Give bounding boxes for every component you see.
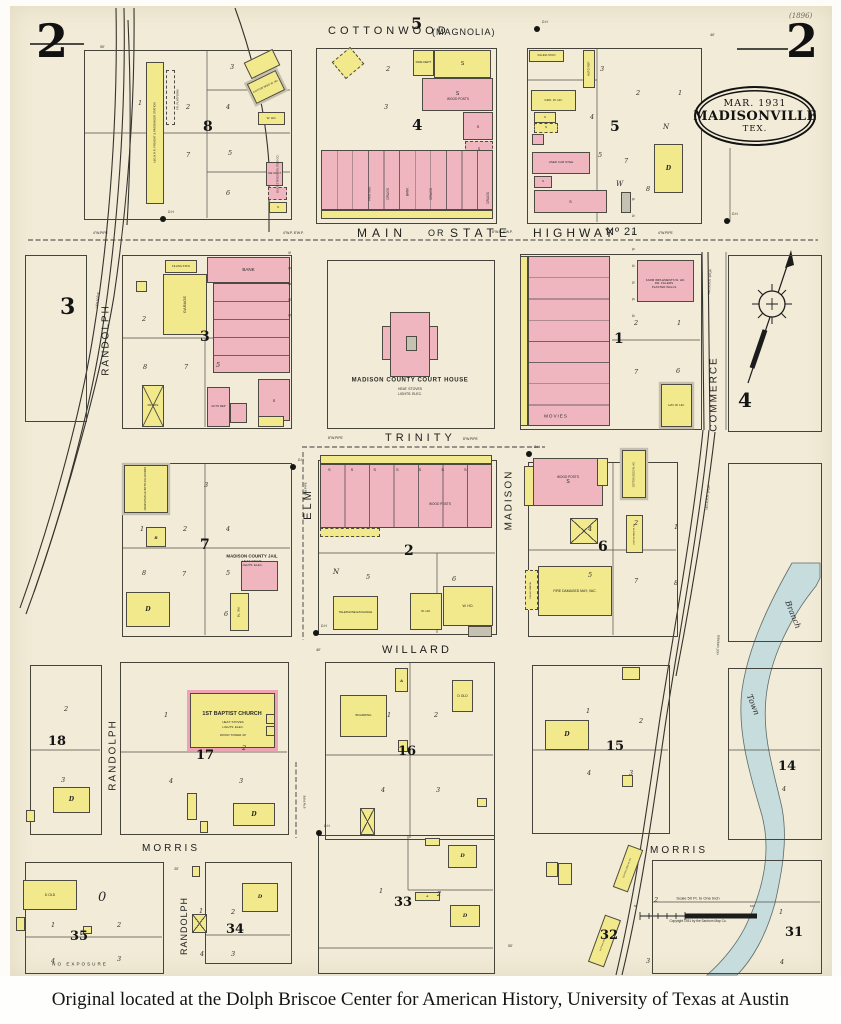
block-number-6: 6: [598, 540, 608, 554]
map-annotation-0: 0: [98, 890, 106, 906]
street-label-highway: HIGHWAY: [533, 226, 617, 240]
building: [320, 455, 492, 464]
lot-number: 1: [379, 888, 383, 895]
building: [320, 464, 492, 528]
lot-number: 8: [674, 580, 678, 587]
lot-number: 2: [186, 104, 190, 111]
building-label: S: [461, 61, 464, 67]
lot-number: 5: [366, 574, 370, 581]
block-number-31: 31: [785, 926, 803, 939]
building-label: S: [273, 398, 276, 403]
building-telephone-exchange: TELEPHONE EXCHANGE: [333, 596, 378, 630]
page-number: 2: [36, 14, 68, 68]
building-auto-rep: AUTO REP: [583, 50, 595, 88]
building-label: R: [154, 535, 157, 540]
block-number-32: 32: [600, 929, 618, 942]
map-annotation-gulf-states-utilities-co: GULF STATES UTILITIES CO.: [276, 155, 279, 193]
map-annotation-lights-elec: LIGHTS: ELEC.: [222, 726, 243, 730]
block-number-1: 1: [614, 332, 624, 346]
map-annotation-40: 40': [710, 33, 715, 37]
map-date-badge: MAR. 1931 MADISONVILLE TEX.: [694, 86, 816, 146]
building-label: FILLING STA'N: [172, 265, 190, 268]
building: [321, 210, 493, 219]
map-annotation-n: N: [663, 123, 669, 131]
lot-number: 3: [600, 66, 604, 73]
lot-number: 3: [629, 770, 633, 777]
street-label-randolph: RANDOLPH: [101, 304, 112, 376]
building-label: HAY W. HO.: [668, 404, 684, 408]
lot-number: 8: [142, 570, 146, 577]
lot-number: 7: [624, 158, 628, 165]
block-number-5: 5: [411, 16, 422, 32]
building: [468, 626, 492, 637]
lot-number: 2: [434, 712, 438, 719]
street-label-randolph: RANDOLPH: [108, 719, 119, 791]
street-label-or: OR: [428, 228, 446, 238]
badge-date: MAR. 1931: [724, 98, 787, 109]
building: [200, 821, 208, 833]
hydrant-label: D.H.: [321, 625, 327, 629]
map-annotation-movies: MOVIES: [544, 413, 568, 419]
lot-number: 4: [590, 114, 594, 121]
building: [528, 256, 610, 426]
hydrant-label: D.H.: [542, 21, 548, 25]
building-label: D: [69, 796, 74, 804]
building: [320, 528, 380, 537]
building-s: S: [434, 50, 491, 78]
building: [192, 866, 200, 877]
building-label: FILLING STATION: [530, 582, 533, 598]
lot-number: 2: [242, 745, 246, 752]
lot-number: 2: [117, 922, 121, 929]
building-s: S: [534, 176, 552, 188]
lot-number: 5: [588, 572, 592, 579]
lot-number: 3: [204, 482, 208, 489]
building-label: FILLING STA'N: [538, 54, 556, 57]
building: [532, 134, 544, 145]
building-label: S: [544, 116, 546, 120]
water-hydrant-dot: [724, 218, 730, 224]
map-annotation-i-g-n-r-r-spur: I.&G.N.R.R. SPUR: [708, 269, 713, 294]
lot-number: 5: [598, 152, 602, 159]
lot-number: 2: [386, 66, 390, 73]
map-annotation-ssssssss: SSSSSSSS: [630, 198, 635, 331]
building: [597, 458, 608, 486]
water-hydrant-dot: [313, 630, 319, 636]
block-outline: [25, 862, 164, 974]
lot-number: 3: [61, 777, 65, 784]
water-hydrant-dot: [160, 216, 166, 222]
block-number-5: 5: [610, 120, 620, 134]
block-number-8: 8: [203, 120, 213, 134]
street-label-madison: MADISON: [504, 470, 515, 531]
building: [266, 714, 275, 724]
map-annotation-100: 100: [750, 905, 755, 908]
lot-number: 1: [387, 712, 391, 719]
map-annotation-plaster-walls: PLASTER WALLS: [652, 286, 677, 290]
building-bank: BANK: [207, 257, 290, 283]
block-number-16: 16: [398, 745, 416, 758]
map-annotation-scale-50-ft-to-one-inch: Scale 50 Ft. to One Inch: [676, 897, 719, 902]
building-bl-sm: BL. SM.: [230, 593, 249, 631]
map-annotation-madison-county-court-house: MADISON COUNTY COURT HOUSE: [352, 377, 469, 384]
building-label: W. HO.: [421, 610, 431, 614]
map-annotation-sssssss: SSSSSSS: [328, 468, 487, 473]
building: [230, 403, 247, 423]
building-label: D: [463, 913, 467, 919]
map-annotation-fr-platform: FR. PLATFORM: [176, 90, 179, 110]
hydrant-label: D.H.: [534, 446, 540, 450]
building-label: D: [251, 811, 256, 819]
plate-note: (1896): [789, 12, 812, 20]
block-outline: [728, 668, 822, 840]
lot-number: 1: [779, 909, 783, 916]
lot-number: 2: [183, 526, 187, 533]
building-label: MADISONVILLE BOTTLING WORKS: [144, 467, 147, 510]
building: [546, 862, 558, 877]
block-number-7: 7: [200, 538, 210, 552]
lot-number: 2: [231, 909, 235, 916]
building-label: D: [258, 894, 262, 900]
map-annotation-4-w-pipe: 4"W.PIPE: [93, 231, 108, 235]
water-hydrant-dot: [534, 26, 540, 32]
lot-number: 7: [634, 369, 638, 376]
block-number-33: 33: [394, 896, 412, 909]
map-annotation-n: N: [333, 568, 339, 576]
hydrant-label: D.H.: [298, 459, 304, 463]
block-outline: [728, 463, 822, 642]
block-number-14: 14: [778, 760, 796, 773]
building: [192, 914, 207, 933]
lot-number: 1: [164, 712, 168, 719]
map-annotation-8-w-pipe: 8"W.PIPE: [463, 437, 478, 441]
building-label: S: [477, 124, 480, 129]
lot-number: 3: [384, 104, 388, 111]
lot-number: 5: [228, 150, 232, 157]
block-number-17: 17: [196, 749, 214, 762]
lot-number: 3: [646, 958, 650, 965]
building: [406, 336, 417, 351]
map-annotation-8-w-pipe: 8"W.PIPE: [304, 795, 308, 808]
lot-number: 3: [239, 778, 243, 785]
building-label: D OLD: [45, 893, 55, 897]
water-hydrant-dot: [290, 464, 296, 470]
building-used-car-stge: USED CAR STGE: [532, 152, 590, 174]
building-d: D: [545, 720, 589, 750]
building-w-ho: W. HO.: [258, 112, 285, 125]
lot-number: 2: [634, 520, 638, 527]
street-label-commerce: COMMERCE: [709, 356, 720, 431]
street-label-main: MAIN: [357, 226, 407, 240]
building-d-old: D OLD: [452, 680, 473, 712]
lot-number: 2: [142, 316, 146, 323]
street-label-magnolia: (MAGNOLIA): [432, 27, 496, 37]
map-annotation-sssss: SSSSS: [287, 251, 292, 329]
building-label: TELEPHONE EXCHANGE: [339, 611, 372, 614]
block-number-15: 15: [606, 740, 624, 753]
water-hydrant-dot: [526, 451, 532, 457]
block-number-3: 3: [60, 296, 75, 318]
building-d: D: [654, 144, 683, 193]
building: [558, 863, 572, 885]
building: [321, 150, 493, 210]
building-cotton-seed-w-ho: COTTON SEED W. HO.: [622, 450, 646, 498]
building-fire-dept: FIRE DEPT: [413, 50, 434, 76]
building-label: COTTON SEED W. HO.: [253, 79, 279, 94]
building-label: COTTON SEED W. HO.: [623, 858, 633, 879]
building-s: S: [534, 123, 558, 133]
map-annotation-8-w-p-4-w-p: 8"W.P. 4"W.P.: [492, 230, 513, 234]
building-w-ho: W. HO.: [443, 586, 493, 626]
hydrant-label: D.H.: [324, 825, 330, 829]
badge-city: MADISONVILLE: [693, 109, 817, 124]
building-d-old: D OLD: [23, 880, 77, 910]
lot-number: 4: [587, 770, 591, 777]
building-label: a: [427, 895, 429, 899]
map-annotation-wood-posts: WOOD POSTS: [447, 98, 469, 102]
block-outline: [25, 255, 87, 422]
lot-number: 1: [199, 908, 203, 915]
block-outline: [205, 862, 292, 964]
street-label-willard: WILLARD: [382, 644, 452, 656]
building-label: GARAGE: [183, 296, 188, 313]
lot-number: 6: [224, 611, 228, 618]
street-label-trinity: TRINITY: [385, 432, 456, 444]
building-r: R: [146, 527, 166, 547]
lot-number: 2: [64, 706, 68, 713]
map-annotation-8-w-pipe: 8"W.PIPE: [328, 436, 343, 440]
map-annotation-40: 40': [316, 648, 321, 652]
map-annotation-copyright-1931-by-the-sanborn-: Copyright 1931 by the Sanborn Map Co.: [669, 920, 726, 924]
building-filling-station: FILLING STATION: [525, 570, 538, 610]
lot-number: 2: [654, 897, 658, 904]
building-filling-sta-n: FILLING STA'N: [529, 50, 564, 62]
building-label: S: [542, 180, 544, 184]
building-label: S: [277, 206, 279, 210]
map-content-layer: I.&G.N.R.R. FREIGHT & PASSENGER STATIONC…: [0, 0, 841, 1024]
building: [258, 416, 284, 427]
lot-number: 2: [437, 891, 441, 898]
building-private: PRIVATE: [142, 385, 164, 427]
block-number-35: 35: [70, 930, 88, 943]
lot-number: 3: [231, 951, 235, 958]
badge-state: TEX.: [743, 124, 768, 134]
map-annotation-50: 50': [508, 944, 513, 948]
building-label: FIRE DAMAGED MAY; VAC.: [553, 589, 596, 593]
lot-number: 1: [138, 100, 142, 107]
building-label: S: [545, 126, 547, 130]
lot-number: 4: [588, 526, 592, 533]
building-label: D: [564, 731, 569, 739]
block-number-34: 34: [226, 923, 244, 936]
building: [360, 808, 375, 835]
archive-caption: Original located at the Dolph Briscoe Ce…: [0, 976, 841, 1024]
lot-number: 6: [452, 576, 456, 583]
building-label: I.&G.N.R.R. FREIGHT & PASSENGER STATION: [153, 103, 156, 164]
map-annotation-heat-stoves: HEAT: STOVES: [398, 387, 422, 391]
building-s: S: [534, 112, 556, 123]
building-s: S: [534, 190, 607, 213]
building: [136, 281, 147, 292]
map-annotation-madison-county-jail: MADISON COUNTY JAIL: [226, 553, 277, 558]
building-label: S: [569, 199, 572, 204]
building: [266, 726, 275, 736]
building-d: D: [53, 787, 90, 813]
lot-number: 7: [186, 152, 190, 159]
building-s: S: [269, 202, 287, 213]
building: [16, 917, 25, 931]
lot-number: 7: [184, 364, 188, 371]
building: [213, 283, 290, 373]
street-label-morris: MORRIS: [650, 845, 708, 856]
building-i-g-n-r-r-freight-passenger-station: I.&G.N.R.R. FREIGHT & PASSENGER STATION: [146, 62, 164, 204]
street-label-randolph: RANDOLPH: [179, 897, 189, 955]
lot-number: 4: [782, 786, 786, 793]
block-outline: [652, 860, 822, 974]
lot-number: 2: [636, 90, 640, 97]
building: [622, 667, 640, 680]
building: [425, 838, 440, 846]
building-label: D: [145, 606, 150, 614]
building-s: S: [533, 458, 603, 506]
lot-number: 4: [226, 104, 230, 111]
building-label: W. HO.: [463, 604, 474, 608]
building-hay-w-ho: HAY W. HO.: [661, 384, 692, 427]
lot-number: 6: [226, 190, 230, 197]
map-annotation-1st-baptist-church: 1ST BAPTIST CHURCH: [202, 711, 261, 717]
building-cotton-seed-w-ho: COTTON SEED W. HO.: [613, 845, 643, 893]
lot-number: 4: [381, 787, 385, 794]
building: [26, 810, 35, 822]
map-annotation-drugs: DRUGS: [487, 192, 491, 204]
lot-number: 1: [51, 922, 55, 929]
building-label: D OLD: [457, 694, 467, 698]
lot-number: 6: [676, 368, 680, 375]
map-annotation-drugs: DRUGS: [387, 188, 391, 200]
building-label: COTTON SEED W. HO.: [633, 461, 636, 487]
building: [570, 518, 598, 544]
map-annotation-wood-posts: WOOD POSTS: [557, 476, 579, 480]
building-label: AUTO REP: [587, 62, 590, 76]
map-annotation-6-w-pipe: 6"W.PIPE: [305, 482, 309, 495]
lot-number: 3: [117, 956, 121, 963]
building-d: D: [448, 845, 477, 868]
lot-number: 1: [678, 90, 682, 97]
lot-number: 5: [216, 362, 220, 369]
lot-number: 8: [646, 186, 650, 193]
map-annotation-50: 50: [634, 905, 637, 908]
building-s: S: [463, 112, 493, 140]
building-label: BL. SM.: [238, 607, 242, 618]
map-annotation-no-exposure: NO EXPOSURE: [52, 961, 108, 967]
building: [166, 70, 175, 125]
lot-number: 3: [436, 787, 440, 794]
map-annotation-printing: PRINTING: [368, 187, 372, 201]
building-label: GRO. W. HO.: [544, 99, 562, 103]
map-annotation-4-w-pipe: 4"W.PIPE: [658, 231, 673, 235]
map-annotation-wood-tower-40: WOOD TOWER 40': [220, 734, 246, 738]
map-annotation-drugs: DRUGS: [430, 188, 434, 200]
block-number-2: 2: [404, 544, 414, 558]
block-outline: [84, 50, 292, 220]
building-filling-sta-n: FILLING STA'N: [165, 260, 197, 273]
map-annotation-50: 50': [100, 45, 105, 49]
building-label: FIRE DEPT: [416, 61, 432, 65]
building-a: A: [395, 668, 408, 692]
lot-number: 3: [230, 64, 234, 71]
building-label: A: [400, 678, 403, 683]
map-annotation-4-w-p-8-w-p: 4"W.P. 8"W.P.: [283, 231, 304, 235]
lot-number: 2: [639, 718, 643, 725]
block-number-4: 4: [738, 390, 752, 410]
building-label: AUTO REP: [211, 405, 225, 408]
lot-number: 1: [674, 524, 678, 531]
building-gro-w-ho: GRO. W. HO.: [531, 90, 576, 111]
building-w-ho: W. HO.: [410, 593, 442, 630]
building-s: S: [422, 78, 493, 111]
lot-number: 8: [143, 364, 147, 371]
lot-number: 4: [169, 778, 173, 785]
lot-number: 5: [226, 570, 230, 577]
sanborn-map-sheet: I.&G.N.R.R. FREIGHT & PASSENGER STATIONC…: [0, 0, 841, 1024]
building-d: D: [233, 803, 275, 826]
lot-number: 4: [780, 959, 784, 966]
building-label: BANK: [242, 267, 254, 273]
building-label: D: [460, 853, 464, 859]
lot-number: 4: [226, 526, 230, 533]
lot-number: 7: [182, 571, 186, 578]
map-annotation-35: 35': [174, 867, 179, 871]
building-auto-rep: AUTO REP: [207, 387, 230, 427]
block-number-4: 4: [412, 118, 422, 133]
map-annotation-wood-posts: WOOD POSTS: [429, 503, 451, 507]
building-d: D: [242, 883, 278, 912]
building-boarding: BOARDING: [340, 695, 387, 737]
hydrant-label: D.H.: [732, 213, 738, 217]
building-fire-damaged-may-vac: FIRE DAMAGED MAY; VAC.: [538, 566, 612, 616]
block-number-18: 18: [48, 735, 66, 748]
building-label: USED CAR STGE: [549, 161, 574, 165]
building-label: D: [666, 165, 671, 173]
map-annotation-bank: BANK: [406, 188, 410, 197]
building-label: BOARDING: [355, 714, 371, 718]
map-annotation-lights-elec: LIGHTS: ELEC.: [398, 392, 422, 396]
lot-number: 7: [634, 578, 638, 585]
building-d: D: [450, 905, 480, 927]
lot-number: 1: [677, 320, 681, 327]
building: [477, 798, 487, 807]
page-number: 2: [786, 14, 818, 68]
building-s: S: [258, 379, 290, 421]
building-garage: GARAGE: [163, 274, 207, 335]
map-annotation-i-g-n-r-r-spur: I.&G.N.R.R. SPUR: [705, 485, 711, 510]
lot-number: 1: [140, 526, 144, 533]
building: [187, 793, 197, 820]
water-hydrant-dot: [316, 830, 322, 836]
street-label-morris: MORRIS: [142, 843, 200, 854]
lot-number: 1: [586, 708, 590, 715]
hydrant-label: D.H.: [168, 211, 174, 215]
building-label: W. HO.: [267, 117, 277, 121]
building-label: PRIVATE: [148, 404, 159, 407]
building-d: D: [126, 592, 170, 627]
building: [520, 256, 528, 426]
map-annotation-lights-elec: LIGHTS: ELEC.: [241, 564, 262, 568]
block-number-3: 3: [200, 330, 210, 344]
lot-number: 4: [200, 951, 204, 958]
building-madisonville-bottling-works: MADISONVILLE BOTTLING WORKS: [124, 465, 168, 513]
map-annotation-not-opened: NOT OPENED: [717, 635, 722, 655]
